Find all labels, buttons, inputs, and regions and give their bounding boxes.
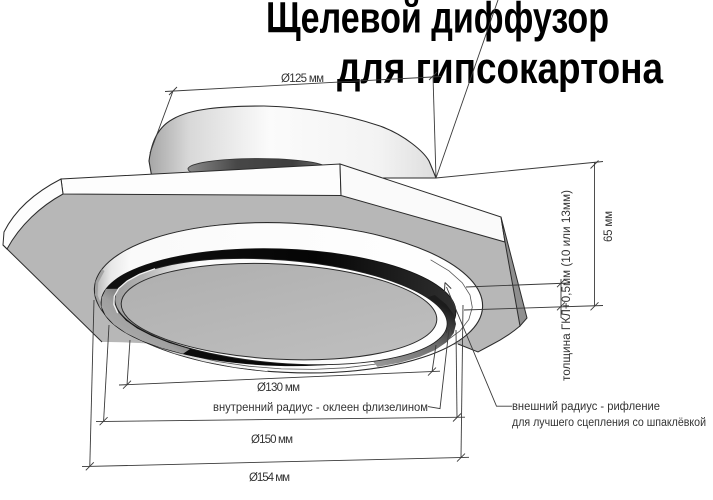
svg-text:толщина ГКЛ+0,5мм (10 или 13мм: толщина ГКЛ+0,5мм (10 или 13мм) xyxy=(561,190,573,381)
svg-text:для лучшего сцепления со шпакл: для лучшего сцепления со шпаклёвкой xyxy=(512,417,706,429)
svg-text:внутренний радиус - оклеен фли: внутренний радиус - оклеен флизелином xyxy=(213,402,428,414)
svg-text:для гипсокартона: для гипсокартона xyxy=(337,45,664,93)
svg-text:Щелевой диффузор: Щелевой диффузор xyxy=(266,0,609,43)
svg-text:внешний радиус - рифление: внешний радиус - рифление xyxy=(512,401,660,413)
svg-text:Ø154 мм: Ø154 мм xyxy=(249,472,290,484)
svg-text:Ø130 мм: Ø130 мм xyxy=(257,382,300,394)
svg-text:65 мм: 65 мм xyxy=(603,211,615,242)
svg-text:Ø125 мм: Ø125 мм xyxy=(281,73,324,85)
svg-text:Ø150 мм: Ø150 мм xyxy=(251,434,293,446)
